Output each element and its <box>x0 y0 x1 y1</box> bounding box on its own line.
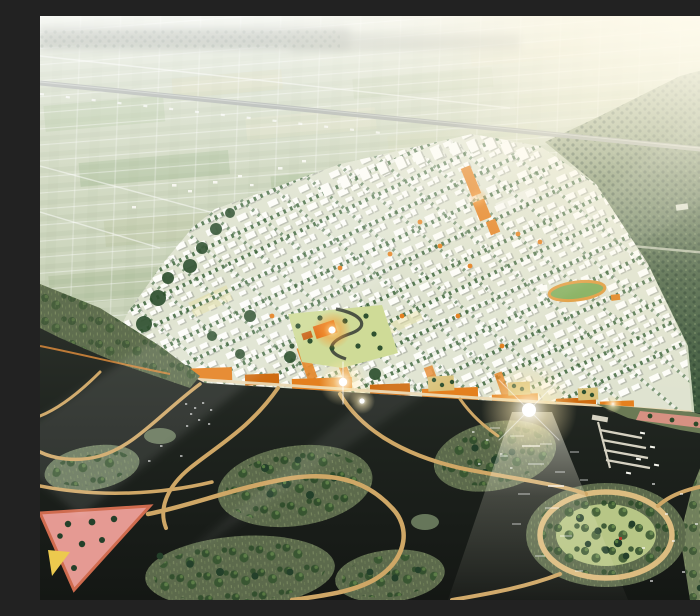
rendering-canvas <box>40 16 700 600</box>
masterplan-rendering <box>40 16 700 600</box>
corner-sun-glare <box>40 16 700 600</box>
